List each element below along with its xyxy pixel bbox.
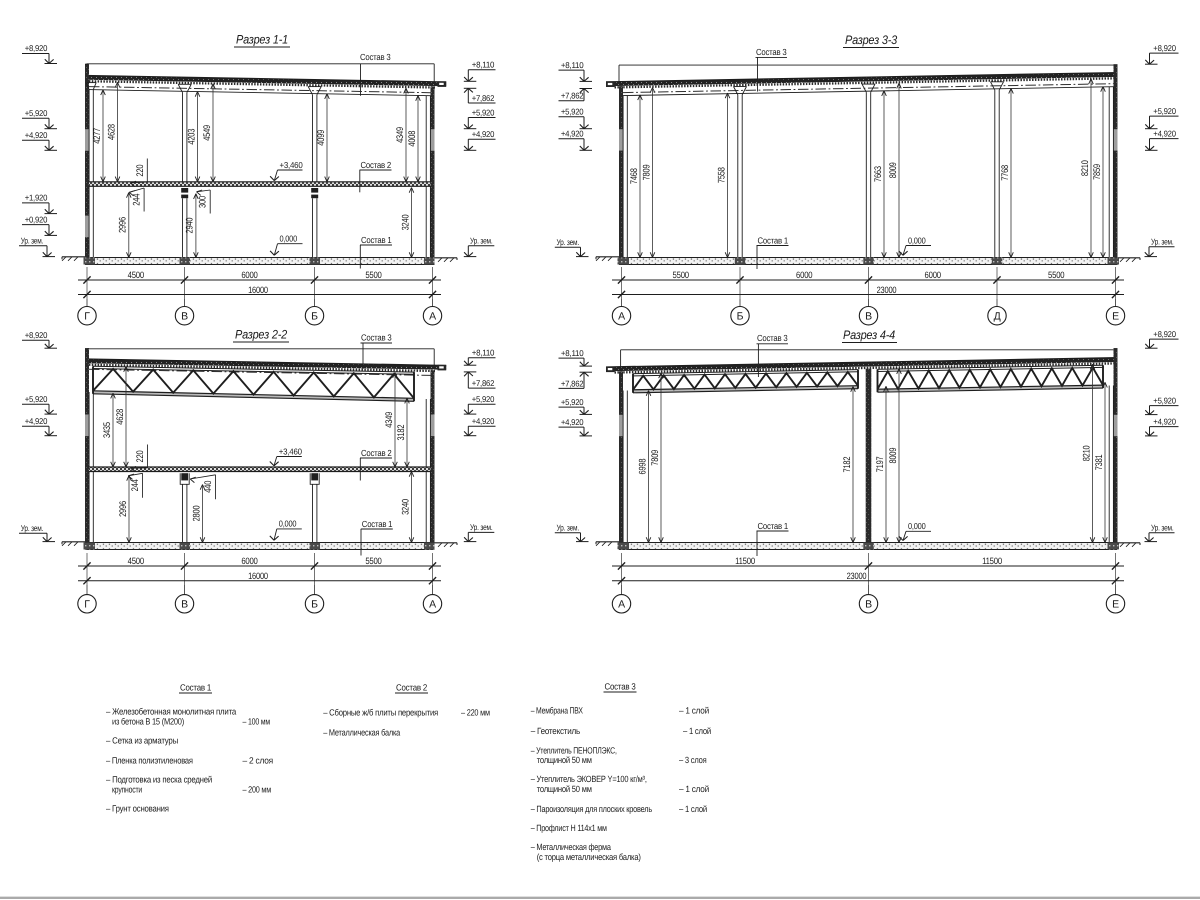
svg-text:6000: 6000: [241, 556, 257, 566]
svg-text:244: 244: [132, 193, 143, 206]
svg-text:Состав 1: Состав 1: [758, 521, 789, 531]
svg-text:– 220 мм: – 220 мм: [461, 707, 490, 717]
svg-text:А: А: [618, 310, 625, 322]
svg-text:В: В: [865, 310, 872, 322]
svg-text:+0,920: +0,920: [25, 214, 48, 224]
svg-text:7809: 7809: [650, 450, 661, 466]
svg-text:+8,110: +8,110: [561, 348, 584, 358]
svg-text:– Мембрана ПВХ: – Мембрана ПВХ: [531, 705, 583, 715]
svg-text:– Геотекстиль: – Геотекстиль: [531, 726, 581, 736]
svg-text:из бетона В 15 (М200): из бетона В 15 (М200): [112, 716, 184, 726]
svg-text:4349: 4349: [395, 127, 406, 143]
svg-text:(с торца металлическая балка): (с торца металлическая балка): [537, 852, 641, 862]
svg-text:А: А: [429, 598, 436, 610]
svg-text:Ур. зем.: Ур. зем.: [21, 523, 44, 533]
svg-text:толщиной 50 мм: толщиной 50 мм: [537, 755, 592, 765]
svg-text:крупности: крупности: [112, 784, 142, 794]
svg-text:440: 440: [203, 481, 214, 493]
svg-text:Ур. зем.: Ур. зем.: [1151, 523, 1174, 533]
svg-text:+3,460: +3,460: [280, 160, 303, 170]
svg-text:+8,110: +8,110: [472, 60, 495, 70]
svg-text:А: А: [429, 310, 436, 322]
svg-text:Состав 3: Состав 3: [360, 52, 391, 62]
svg-text:+4,920: +4,920: [25, 416, 48, 426]
svg-text:5500: 5500: [673, 270, 689, 280]
svg-text:Состав 1: Состав 1: [362, 519, 393, 529]
svg-text:7859: 7859: [1092, 164, 1103, 180]
svg-text:4500: 4500: [128, 556, 144, 566]
svg-text:Е: Е: [1112, 310, 1119, 322]
svg-text:А: А: [618, 598, 625, 610]
svg-text:– Металлическая балка: – Металлическая балка: [323, 727, 400, 737]
svg-text:Ур. зем.: Ур. зем.: [470, 522, 493, 532]
svg-text:+3,460: +3,460: [279, 446, 302, 456]
svg-text:5500: 5500: [1048, 270, 1064, 280]
svg-text:6000: 6000: [241, 270, 257, 280]
svg-text:Состав 3: Состав 3: [361, 332, 392, 342]
svg-text:7468: 7468: [629, 168, 640, 184]
svg-text:Ур. зем.: Ур. зем.: [557, 523, 580, 533]
svg-text:4500: 4500: [128, 270, 144, 280]
svg-text:+4,920: +4,920: [561, 417, 584, 427]
svg-text:8210: 8210: [1081, 445, 1092, 461]
svg-text:– 1 слой: – 1 слой: [683, 726, 711, 736]
svg-text:– Пароизоляция для плоских кро: – Пароизоляция для плоских кровель: [531, 804, 653, 814]
svg-text:4099: 4099: [316, 130, 327, 146]
svg-text:Состав 2: Состав 2: [396, 683, 427, 693]
svg-text:+8,920: +8,920: [25, 43, 48, 53]
svg-text:+8,110: +8,110: [561, 60, 584, 70]
svg-text:8009: 8009: [888, 162, 899, 178]
svg-text:Г: Г: [84, 598, 90, 610]
svg-text:+7,862: +7,862: [561, 378, 584, 388]
svg-text:0,000: 0,000: [908, 521, 926, 531]
svg-text:– Сетка из арматуры: – Сетка из арматуры: [106, 736, 178, 746]
svg-text:+5,920: +5,920: [25, 108, 48, 118]
svg-text:Ур. зем.: Ур. зем.: [21, 236, 44, 246]
svg-text:+4,920: +4,920: [1153, 129, 1176, 139]
svg-text:+7,862: +7,862: [472, 93, 495, 103]
svg-text:– Утеплитель ЭКОВЕР Y=100 кг/м: – Утеплитель ЭКОВЕР Y=100 кг/м³,: [531, 774, 647, 784]
svg-text:4628: 4628: [115, 409, 126, 425]
svg-text:Разрез 1-1: Разрез 1-1: [236, 33, 288, 47]
svg-text:2940: 2940: [185, 218, 196, 234]
svg-text:16000: 16000: [248, 285, 268, 295]
svg-text:8009: 8009: [888, 448, 899, 464]
svg-text:+5,920: +5,920: [561, 107, 584, 117]
svg-text:0,000: 0,000: [280, 234, 298, 244]
svg-text:4203: 4203: [186, 129, 197, 145]
svg-text:– Утеплитель ПЕНОПЛЭКС,: – Утеплитель ПЕНОПЛЭКС,: [531, 745, 617, 755]
svg-text:В: В: [865, 598, 872, 610]
svg-text:16000: 16000: [248, 571, 268, 581]
svg-text:– Подготовка из песка средней: – Подготовка из песка средней: [106, 775, 212, 785]
svg-text:5500: 5500: [365, 556, 381, 566]
svg-text:+5,920: +5,920: [1153, 396, 1176, 406]
svg-text:+8,920: +8,920: [1153, 329, 1176, 339]
svg-text:23000: 23000: [847, 571, 867, 581]
svg-text:– Сборные ж/б плиты перекрытия: – Сборные ж/б плиты перекрытия: [323, 707, 438, 717]
svg-text:Состав 1: Состав 1: [361, 235, 392, 245]
svg-text:300: 300: [198, 196, 209, 208]
svg-text:11500: 11500: [982, 556, 1002, 566]
svg-text:2996: 2996: [118, 501, 129, 517]
svg-text:+5,920: +5,920: [472, 107, 495, 117]
svg-text:+4,920: +4,920: [472, 129, 495, 139]
svg-text:+8,110: +8,110: [472, 348, 495, 358]
svg-text:7663: 7663: [873, 166, 884, 182]
svg-text:– Профлист Н 114х1 мм: – Профлист Н 114х1 мм: [531, 823, 607, 833]
svg-text:4277: 4277: [92, 128, 103, 144]
svg-text:4549: 4549: [202, 125, 213, 141]
svg-text:– Грунт основания: – Грунт основания: [106, 804, 169, 814]
svg-text:6000: 6000: [925, 270, 941, 280]
svg-text:+1,920: +1,920: [25, 193, 48, 203]
svg-text:+4,920: +4,920: [1153, 417, 1176, 427]
svg-text:7381: 7381: [1094, 454, 1105, 470]
svg-text:Состав 3: Состав 3: [757, 333, 788, 343]
svg-text:Состав 2: Состав 2: [361, 160, 392, 170]
svg-text:Состав 2: Состав 2: [361, 448, 392, 458]
svg-text:4628: 4628: [106, 124, 117, 140]
svg-text:7182: 7182: [842, 457, 853, 473]
svg-text:– 1 слой: – 1 слой: [679, 784, 709, 794]
svg-text:+4,920: +4,920: [472, 416, 495, 426]
svg-text:Ур. зем.: Ур. зем.: [557, 237, 580, 247]
svg-text:+5,920: +5,920: [472, 394, 495, 404]
svg-text:+5,920: +5,920: [561, 397, 584, 407]
svg-text:4349: 4349: [384, 412, 395, 428]
svg-text:В: В: [181, 598, 188, 610]
svg-text:7197: 7197: [875, 456, 886, 472]
svg-text:– 3 слоя: – 3 слоя: [679, 755, 707, 765]
svg-text:11500: 11500: [735, 556, 755, 566]
svg-text:Разрез 3-3: Разрез 3-3: [845, 33, 897, 47]
svg-text:2800: 2800: [191, 506, 202, 522]
svg-text:Состав 1: Состав 1: [758, 235, 789, 245]
svg-text:220: 220: [135, 451, 146, 463]
svg-text:– Пленка полиэтиленовая: – Пленка полиэтиленовая: [106, 755, 193, 765]
svg-text:0,000: 0,000: [908, 235, 926, 245]
svg-text:+8,920: +8,920: [25, 330, 48, 340]
svg-text:– 2 слоя: – 2 слоя: [243, 755, 274, 765]
svg-text:3240: 3240: [400, 215, 411, 231]
svg-text:В: В: [181, 310, 188, 322]
svg-text:Б: Б: [311, 310, 318, 322]
svg-text:23000: 23000: [877, 285, 897, 295]
svg-text:3240: 3240: [400, 499, 411, 515]
svg-text:+7,862: +7,862: [472, 378, 495, 388]
svg-text:Ур. зем.: Ур. зем.: [1151, 237, 1174, 247]
svg-text:6000: 6000: [796, 270, 812, 280]
svg-text:Г: Г: [84, 310, 90, 322]
svg-text:– Металлическая ферма: – Металлическая ферма: [531, 842, 611, 852]
svg-text:Состав 1: Состав 1: [180, 683, 211, 693]
svg-text:8210: 8210: [1080, 160, 1091, 176]
svg-text:3182: 3182: [396, 425, 407, 441]
svg-text:Д: Д: [994, 310, 1001, 322]
svg-text:+5,920: +5,920: [25, 394, 48, 404]
svg-text:Разрез 2-2: Разрез 2-2: [235, 328, 287, 342]
svg-text:– Железобетонная монолитная п: – Железобетонная монолитная плита: [106, 707, 236, 717]
svg-text:220: 220: [135, 165, 146, 177]
svg-text:Б: Б: [311, 598, 318, 610]
svg-text:+4,920: +4,920: [25, 130, 48, 140]
svg-text:5500: 5500: [365, 270, 381, 280]
svg-text:– 100 мм: – 100 мм: [243, 716, 271, 726]
svg-text:7558: 7558: [716, 167, 727, 183]
svg-text:+8,920: +8,920: [1153, 43, 1176, 53]
svg-text:Разрез 4-4: Разрез 4-4: [843, 328, 895, 342]
svg-text:– 1 слой: – 1 слой: [679, 804, 707, 814]
svg-text:7809: 7809: [641, 165, 652, 181]
svg-text:Состав 3: Состав 3: [605, 682, 636, 692]
svg-text:Е: Е: [1112, 598, 1119, 610]
svg-text:– 1 слой: – 1 слой: [679, 705, 709, 715]
svg-text:2996: 2996: [118, 217, 129, 233]
svg-text:7768: 7768: [1000, 165, 1011, 181]
svg-text:0,000: 0,000: [279, 519, 297, 529]
svg-text:– 200 мм: – 200 мм: [243, 784, 272, 794]
svg-text:Б: Б: [737, 310, 744, 322]
svg-text:+5,920: +5,920: [1153, 106, 1176, 116]
svg-text:244: 244: [130, 479, 141, 492]
svg-text:+4,920: +4,920: [561, 129, 584, 139]
svg-text:Ур. зем.: Ур. зем.: [470, 236, 493, 246]
svg-text:3435: 3435: [102, 422, 113, 438]
svg-text:толщиной 50 мм: толщиной 50 мм: [537, 784, 592, 794]
svg-text:6998: 6998: [637, 459, 648, 475]
svg-text:Состав 3: Состав 3: [756, 47, 787, 57]
svg-text:4008: 4008: [407, 131, 418, 147]
